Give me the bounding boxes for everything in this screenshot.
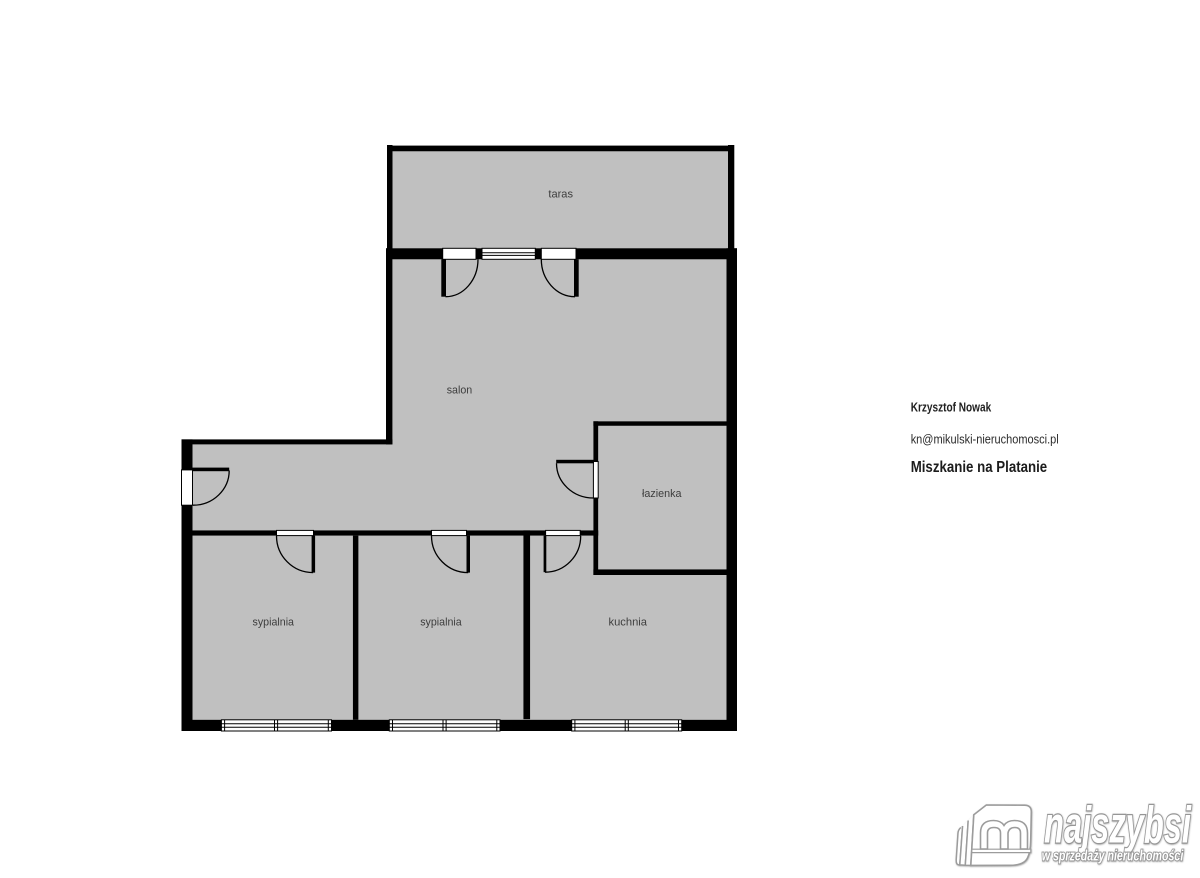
svg-text:w sprzedaży nieruchomości: w sprzedaży nieruchomości: [1042, 848, 1184, 864]
svg-text:Miszkanie na Platanie: Miszkanie na Platanie: [911, 459, 1048, 476]
svg-text:kuchnia: kuchnia: [609, 617, 648, 629]
svg-text:kn@mikulski-nieruchomosci.pl: kn@mikulski-nieruchomosci.pl: [911, 431, 1059, 446]
svg-text:sypialnia: sypialnia: [420, 617, 462, 629]
svg-text:sypialnia: sypialnia: [253, 617, 295, 629]
svg-text:Krzysztof Nowak: Krzysztof Nowak: [911, 400, 992, 415]
svg-text:najszybsi: najszybsi: [1044, 798, 1192, 855]
svg-text:łazienka: łazienka: [642, 488, 682, 500]
svg-text:salon: salon: [447, 384, 473, 396]
svg-text:taras: taras: [548, 188, 573, 200]
